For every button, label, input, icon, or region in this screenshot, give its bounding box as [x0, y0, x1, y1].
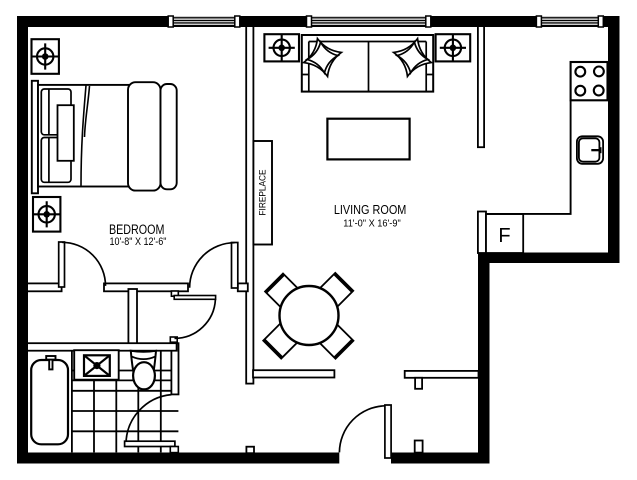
svg-text:BEDROOM: BEDROOM: [109, 222, 165, 237]
svg-text:F: F: [498, 225, 510, 247]
svg-text:10'-8" X 12'-6": 10'-8" X 12'-6": [110, 236, 167, 248]
svg-text:11'-0" X 16'-9": 11'-0" X 16'-9": [343, 218, 401, 229]
svg-text:FIREPLACE: FIREPLACE: [258, 170, 268, 216]
svg-text:LIVING ROOM: LIVING ROOM: [334, 202, 407, 217]
